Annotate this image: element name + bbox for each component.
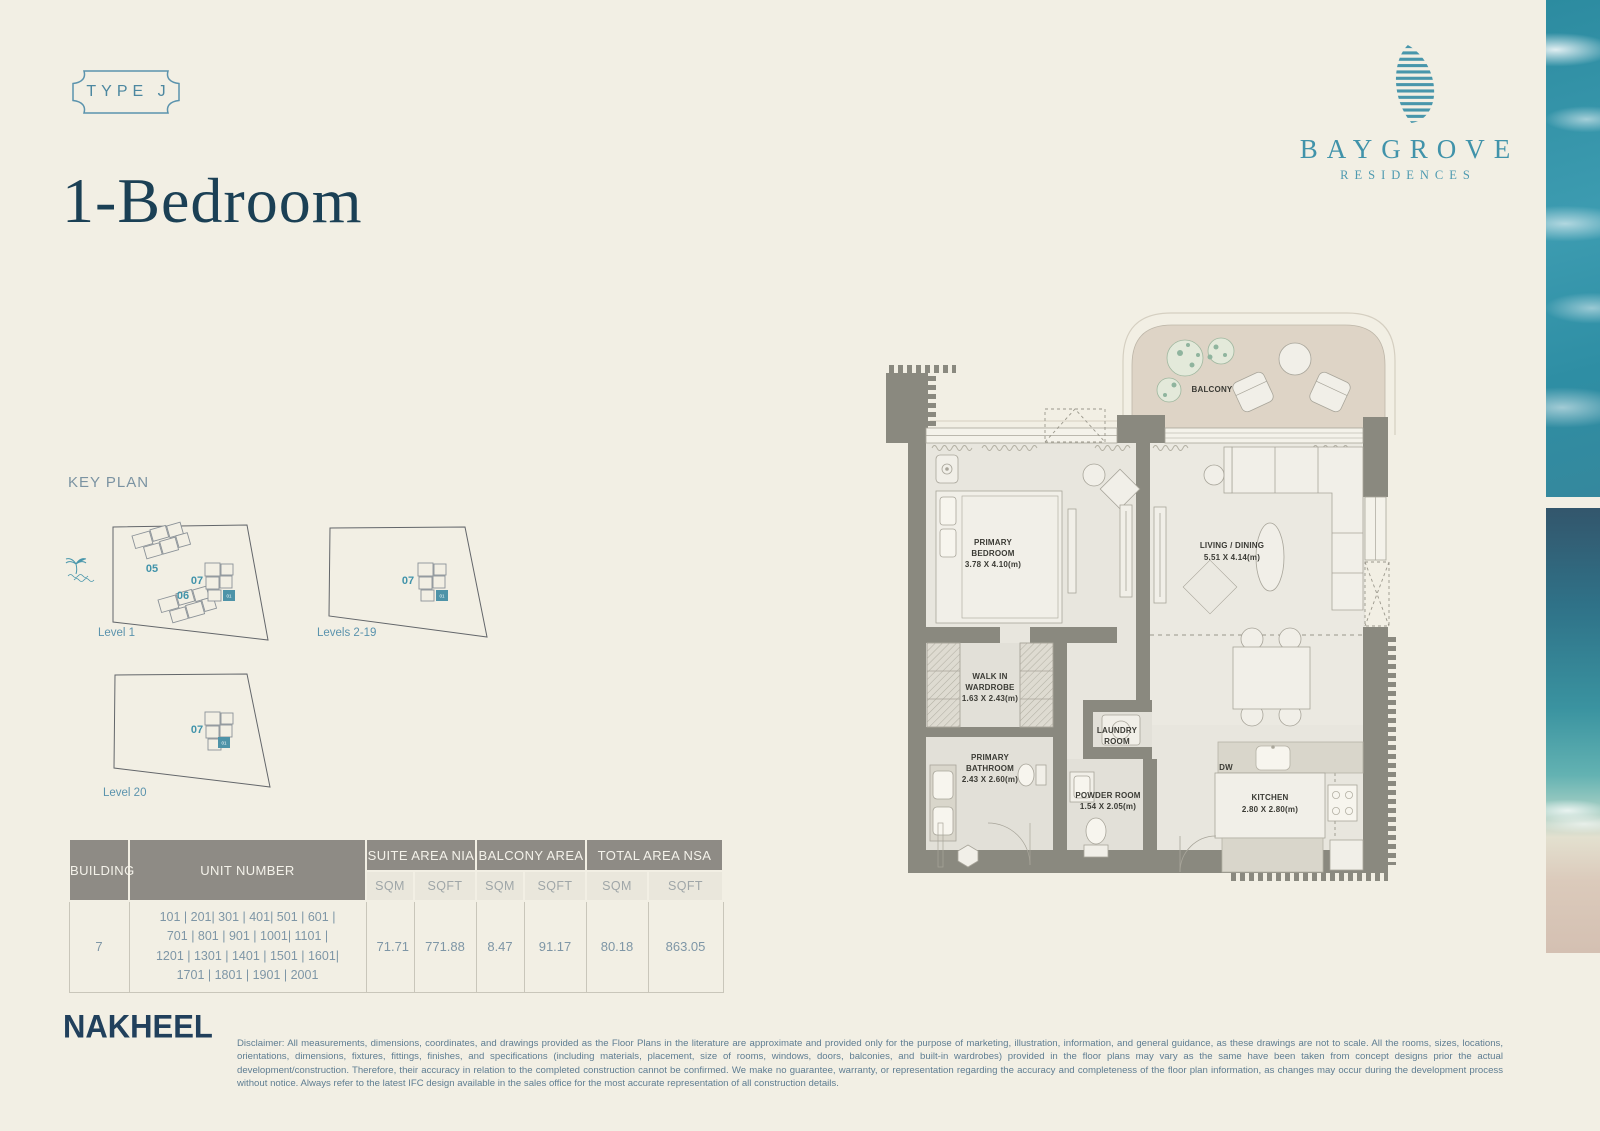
bedroom-dims: 3.78 X 4.10(m)	[965, 560, 1021, 569]
key-plan-caption: Levels 2-19	[317, 627, 376, 639]
key-plan-level-20: 07 01 Level 20	[103, 674, 270, 799]
brochure-page: TYPE J 1-Bedroom BAYGROVE RESIDENCES KEY…	[0, 0, 1600, 1131]
kitchen-dims: 2.80 X 2.80(m)	[1242, 805, 1298, 814]
subcol-sqm: SQM	[586, 871, 648, 901]
subcol-sqft: SQFT	[524, 871, 586, 901]
col-unit-number: UNIT NUMBER	[129, 839, 366, 901]
key-plan-heading: KEY PLAN	[68, 474, 149, 491]
building-label: 07	[402, 575, 414, 587]
wardrobe-label: WALK IN	[972, 672, 1007, 681]
highlighted-unit-label: 01	[221, 741, 227, 746]
disclaimer-text: Disclaimer: All measurements, dimensions…	[237, 1037, 1503, 1091]
highlighted-unit-label: 01	[226, 594, 232, 599]
cell-balcony-sqft: 91.17	[524, 901, 586, 992]
building-label: 07	[191, 724, 203, 736]
table-row: 7 101 | 201| 301 | 401| 501 | 601 | 701 …	[69, 901, 723, 992]
building-label: 06	[177, 590, 189, 602]
svg-text:WARDROBE: WARDROBE	[965, 683, 1015, 692]
area-table: BUILDING UNIT NUMBER SUITE AREA NIA BALC…	[68, 838, 724, 993]
highlighted-unit-label: 01	[439, 594, 445, 599]
pool-water-photo	[1546, 0, 1600, 497]
cell-suite-sqft: 771.88	[414, 901, 476, 992]
svg-text:BATHROOM: BATHROOM	[966, 764, 1014, 773]
nakheel-wordmark: NAKHEEL	[63, 1008, 213, 1046]
col-balcony-area: BALCONY AREA	[476, 839, 586, 871]
balcony-label: BALCONY	[1192, 385, 1233, 394]
powder-room-dims: 1.54 X 2.05(m)	[1080, 802, 1136, 811]
bathroom-label: PRIMARY	[971, 753, 1009, 762]
bedroom-label: PRIMARY	[974, 538, 1012, 547]
bathroom-dims: 2.43 X 2.60(m)	[962, 775, 1018, 784]
palm-beach-icon	[66, 559, 94, 582]
cell-total-sqm: 80.18	[586, 901, 648, 992]
key-plan-level-1: 05 06 07 01 Level 1	[98, 520, 268, 640]
beach-photo	[1546, 508, 1600, 953]
baygrove-logo-mark-icon	[1377, 42, 1435, 126]
balcony-area: BALCONY	[1132, 325, 1385, 435]
key-plan-caption: Level 20	[103, 787, 146, 799]
building-label: 05	[146, 563, 158, 575]
subcol-sqm: SQM	[476, 871, 524, 901]
living-dining-dims: 5.51 X 4.14(m)	[1204, 553, 1260, 562]
baygrove-wordmark: BAYGROVE	[1285, 134, 1525, 165]
dishwasher-label: DW	[1219, 763, 1233, 772]
key-plan: 05 06 07 01 Level 1 07 01 Levels 2-19 07…	[40, 500, 560, 820]
col-total-area: TOTAL AREA NSA	[586, 839, 723, 871]
key-plan-levels-2-19: 07 01 Levels 2-19	[317, 527, 487, 639]
page-title: 1-Bedroom	[62, 164, 363, 238]
cell-unit-numbers: 101 | 201| 301 | 401| 501 | 601 | 701 | …	[129, 901, 366, 992]
kitchen-label: KITCHEN	[1252, 793, 1289, 802]
living-dining-label: LIVING / DINING	[1200, 541, 1264, 550]
wardrobe-dims: 1.63 X 2.43(m)	[962, 694, 1018, 703]
balcony-table	[1279, 343, 1311, 375]
laundry-label: LAUNDRY	[1097, 726, 1138, 735]
subcol-sqm: SQM	[366, 871, 414, 901]
subcol-sqft: SQFT	[414, 871, 476, 901]
key-plan-caption: Level 1	[98, 627, 135, 639]
svg-text:ROOM: ROOM	[1104, 737, 1130, 746]
svg-text:BEDROOM: BEDROOM	[971, 549, 1014, 558]
floor-plan: BALCONY	[880, 295, 1470, 895]
building-label: 07	[191, 575, 203, 587]
cell-building: 7	[69, 901, 129, 992]
cell-balcony-sqm: 8.47	[476, 901, 524, 992]
col-building: BUILDING	[69, 839, 129, 901]
col-suite-area: SUITE AREA NIA	[366, 839, 476, 871]
subcol-sqft: SQFT	[648, 871, 723, 901]
type-badge-label: TYPE J	[66, 66, 186, 118]
baygrove-subtitle: RESIDENCES	[1285, 168, 1525, 183]
cell-total-sqft: 863.05	[648, 901, 723, 992]
area-table-wrap: BUILDING UNIT NUMBER SUITE AREA NIA BALC…	[68, 838, 724, 993]
cell-suite-sqm: 71.71	[366, 901, 414, 992]
powder-room-label: POWDER ROOM	[1075, 791, 1140, 800]
